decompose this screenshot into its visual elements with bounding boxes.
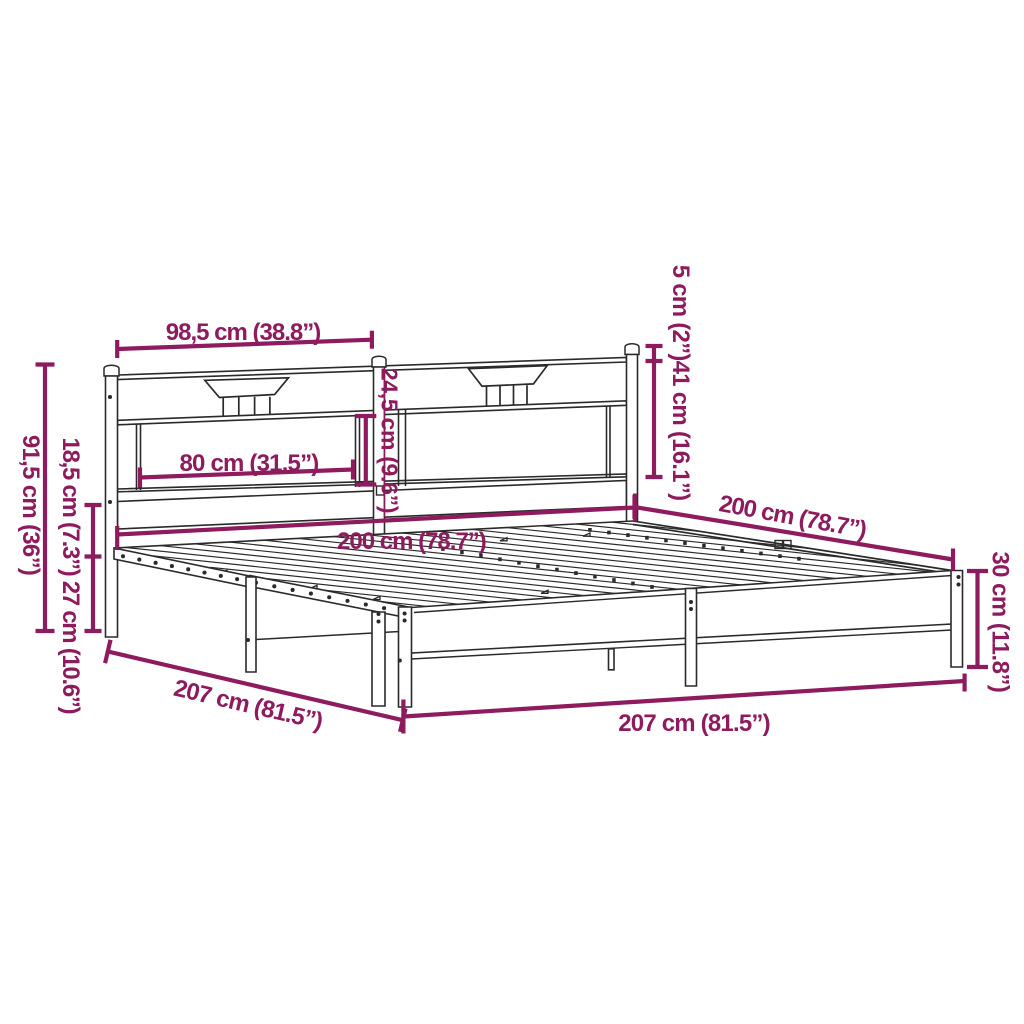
svg-text:98,5 cm (38.8”): 98,5 cm (38.8”) bbox=[166, 319, 320, 346]
svg-text:24,5 cm (9.6”): 24,5 cm (9.6”) bbox=[377, 368, 403, 513]
svg-text:200 cm (78.7”): 200 cm (78.7”) bbox=[337, 528, 486, 555]
svg-text:91,5 cm (36”): 91,5 cm (36”) bbox=[17, 435, 44, 575]
svg-text:5 cm (2”)41 cm (16.1”): 5 cm (2”)41 cm (16.1”) bbox=[667, 265, 694, 501]
svg-text:80 cm (31.5”): 80 cm (31.5”) bbox=[179, 450, 318, 477]
svg-text:18,5 cm (7.3”) 27 cm (10.6”): 18,5 cm (7.3”) 27 cm (10.6”) bbox=[57, 438, 84, 714]
svg-text:207 cm (81.5”): 207 cm (81.5”) bbox=[618, 710, 770, 737]
svg-text:30 cm (11.8”): 30 cm (11.8”) bbox=[987, 551, 1014, 692]
